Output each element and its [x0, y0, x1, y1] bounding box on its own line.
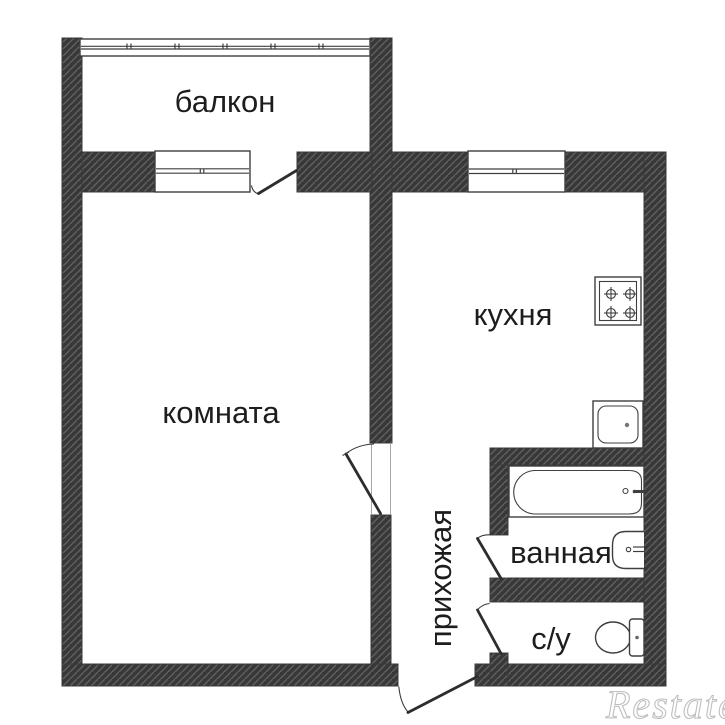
bathtub-icon	[509, 466, 644, 517]
background	[0, 0, 725, 725]
room-label: комната	[162, 395, 280, 430]
wall-left	[62, 38, 82, 686]
bathroom-label: ванная	[510, 535, 612, 570]
wall-bathroom-left	[490, 465, 508, 535]
wall-top-kitchen-left	[392, 152, 468, 192]
wall-top-room-right	[297, 152, 372, 192]
balcony-glazing	[80, 39, 370, 56]
watermark: Restate	[605, 682, 725, 725]
wall-center-lower	[371, 515, 391, 666]
floor-plan-image: балкон комната кухня прихожая ванная с/у…	[0, 0, 725, 725]
stove-icon	[595, 277, 641, 325]
kitchen-window-icon	[468, 151, 565, 192]
toilet-icon	[596, 619, 645, 656]
room-window-icon	[155, 151, 250, 192]
wall-bath-wc-divider	[490, 578, 644, 602]
wall-center-upper	[370, 38, 392, 443]
wc-label: с/у	[531, 621, 571, 656]
wall-wc-left	[490, 653, 508, 686]
wall-bathroom-top	[490, 448, 644, 465]
washbasin-icon	[613, 532, 645, 569]
hallway-label: прихожая	[423, 509, 458, 647]
wall-top-room-left	[82, 152, 155, 192]
floor-plan: балкон комната кухня прихожая ванная с/у…	[0, 0, 725, 725]
wall-right	[644, 152, 666, 686]
kitchen-sink-icon	[593, 401, 643, 448]
balcony-label: балкон	[175, 84, 276, 119]
wall-bottom-left	[62, 664, 398, 686]
kitchen-label: кухня	[474, 297, 553, 332]
